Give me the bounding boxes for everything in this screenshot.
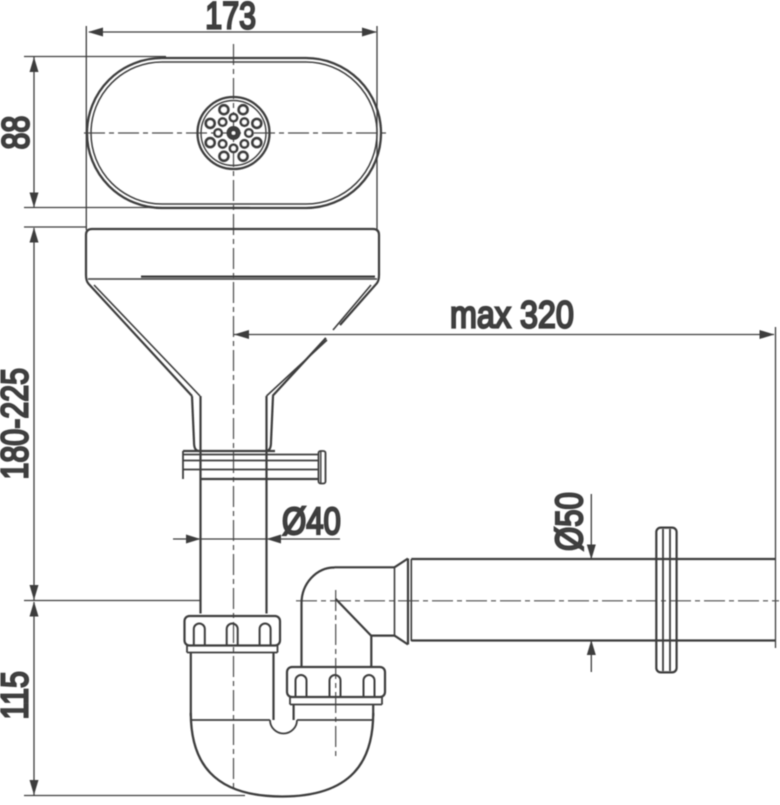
svg-text:180-225: 180-225 xyxy=(0,368,36,480)
svg-text:max 320: max 320 xyxy=(450,294,574,336)
svg-text:Ø50: Ø50 xyxy=(549,492,591,551)
svg-text:88: 88 xyxy=(0,116,37,150)
svg-text:115: 115 xyxy=(0,671,36,719)
svg-text:173: 173 xyxy=(205,0,256,37)
svg-text:Ø40: Ø40 xyxy=(282,501,341,543)
